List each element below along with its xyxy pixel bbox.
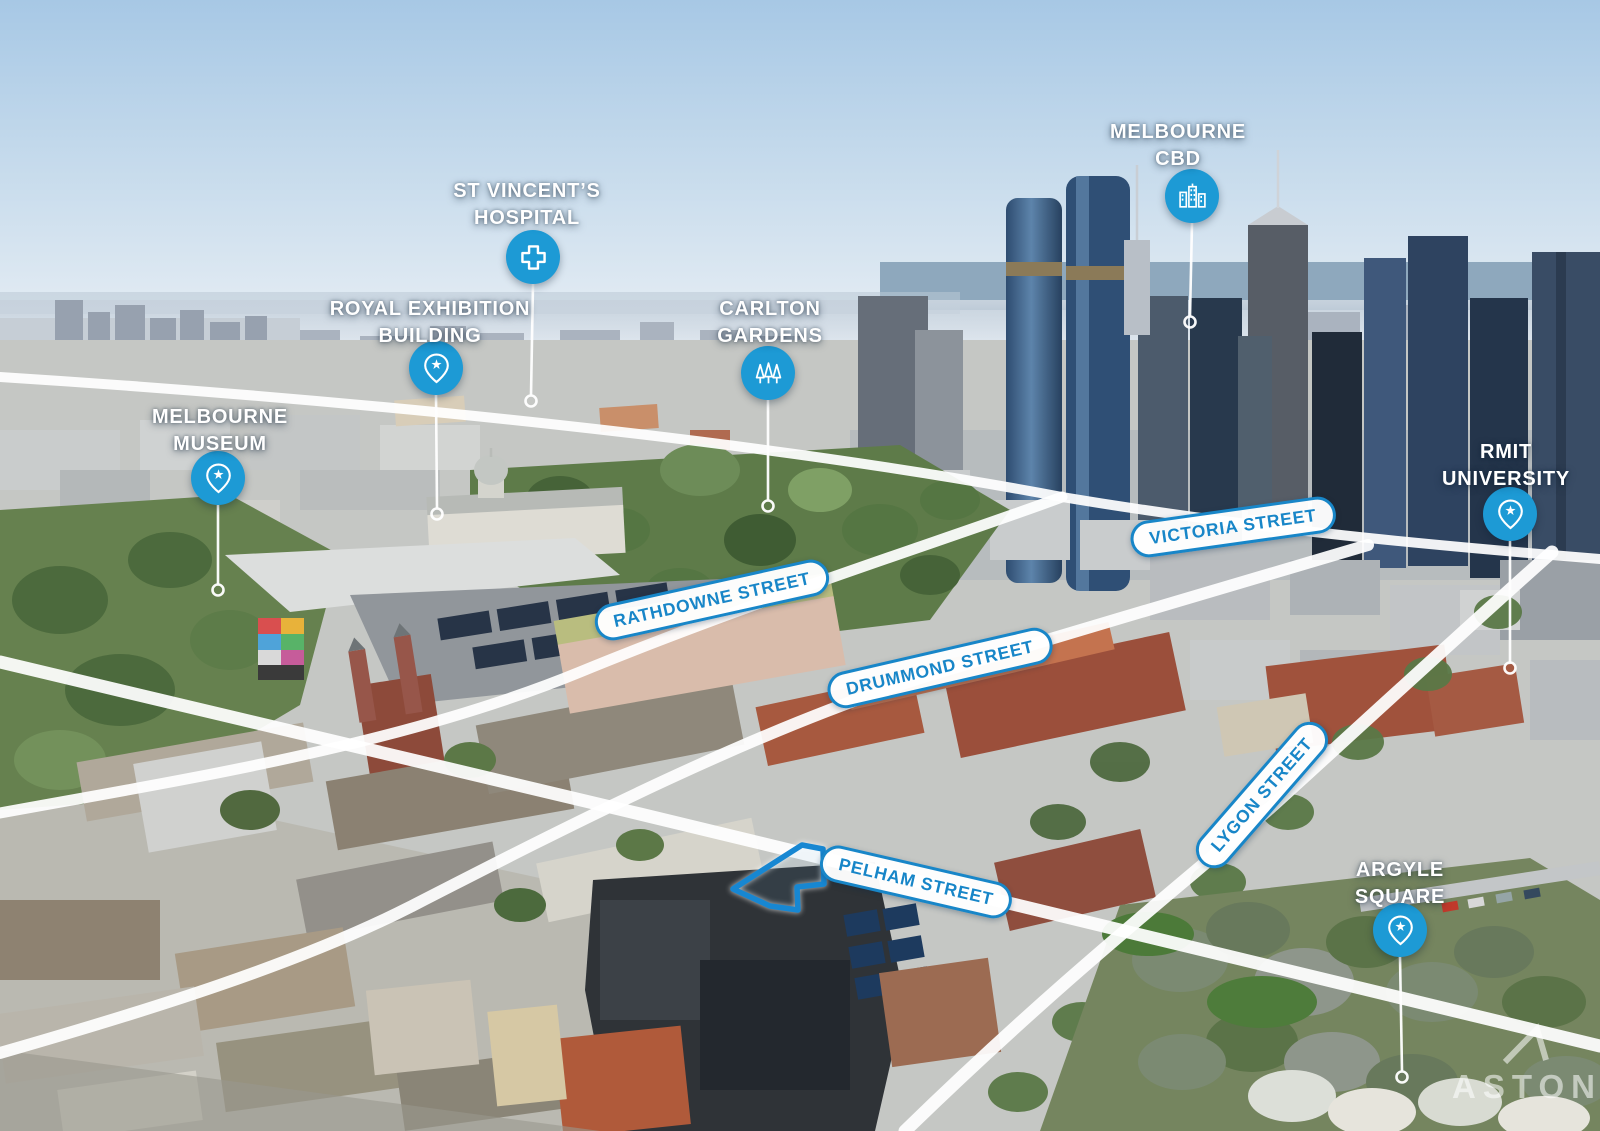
- label-line: ROYAL EXHIBITION: [330, 296, 531, 323]
- label-line: RMIT: [1442, 439, 1570, 466]
- label-line: CBD: [1110, 146, 1246, 173]
- aerial-map-image: MELBOURNE MUSEUM ROYAL EXHIBITION BUILDI…: [0, 0, 1600, 1131]
- landmark-label-royal-exhibition-building: ROYAL EXHIBITION BUILDING: [330, 296, 531, 350]
- aston-arrow-icon: [1499, 1022, 1555, 1066]
- map-pin-argyle-square: [1373, 903, 1427, 957]
- pin-star-icon: [1385, 915, 1416, 946]
- pin-star-icon: [1495, 499, 1526, 530]
- landmark-label-rmit-university: RMIT UNIVERSITY: [1442, 439, 1570, 493]
- map-pin-st-vincents-hospital: [506, 230, 560, 284]
- label-line: BUILDING: [330, 323, 531, 350]
- label-line: SQUARE: [1355, 884, 1445, 911]
- landmark-label-melbourne-museum: MELBOURNE MUSEUM: [152, 404, 288, 458]
- label-line: CARLTON: [717, 296, 823, 323]
- label-line: MUSEUM: [152, 431, 288, 458]
- aston-logo: ASTON: [1452, 1022, 1600, 1106]
- label-line: ST VINCENT’S: [453, 178, 600, 205]
- city-buildings-icon: [1177, 181, 1208, 212]
- map-pin-melbourne-cbd: [1165, 169, 1219, 223]
- label-line: HOSPITAL: [453, 205, 600, 232]
- medical-cross-icon: [518, 242, 549, 273]
- pin-star-icon: [203, 463, 234, 494]
- map-pin-rmit-university: [1483, 487, 1537, 541]
- trees-icon: [753, 358, 784, 389]
- label-line: MELBOURNE: [1110, 119, 1246, 146]
- landmark-label-st-vincents-hospital: ST VINCENT’S HOSPITAL: [453, 178, 600, 232]
- landmark-label-carlton-gardens: CARLTON GARDENS: [717, 296, 823, 350]
- landmark-label-argyle-square: ARGYLE SQUARE: [1355, 857, 1445, 911]
- aston-logo-text: ASTON: [1452, 1068, 1600, 1106]
- label-line: ARGYLE: [1355, 857, 1445, 884]
- label-line: MELBOURNE: [152, 404, 288, 431]
- map-pin-melbourne-museum: [191, 451, 245, 505]
- map-pin-carlton-gardens: [741, 346, 795, 400]
- label-line: UNIVERSITY: [1442, 466, 1570, 493]
- pin-star-icon: [421, 353, 452, 384]
- label-line: GARDENS: [717, 323, 823, 350]
- landmark-label-melbourne-cbd: MELBOURNE CBD: [1110, 119, 1246, 173]
